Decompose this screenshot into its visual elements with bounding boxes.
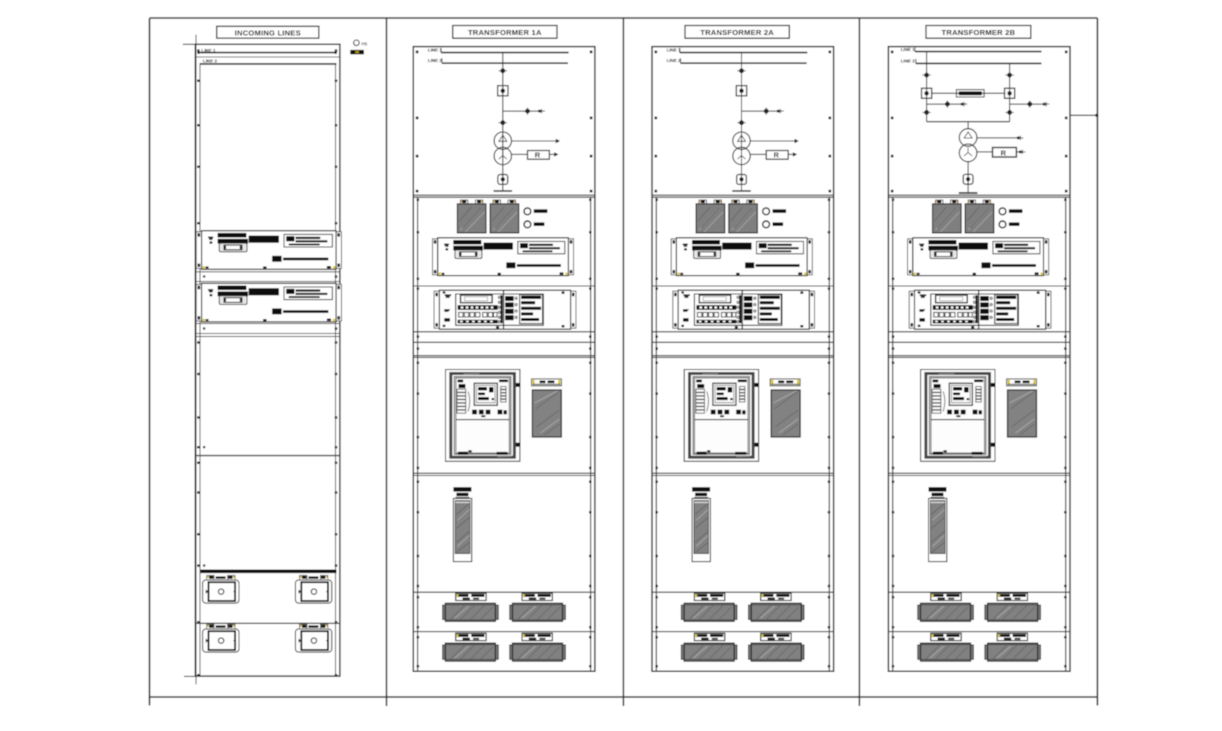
svg-text:LINE 2: LINE 2 bbox=[901, 58, 916, 63]
svg-text:LINE 2: LINE 2 bbox=[203, 58, 218, 63]
svg-text:LINE 1: LINE 1 bbox=[901, 47, 916, 52]
svg-text:TRANSFORMER 2B: TRANSFORMER 2B bbox=[942, 28, 1016, 37]
svg-text:TRANSFORMER 1A: TRANSFORMER 1A bbox=[468, 28, 542, 37]
svg-text:TRANSFORMER 2A: TRANSFORMER 2A bbox=[700, 28, 774, 37]
svg-text:LINE 2: LINE 2 bbox=[667, 58, 682, 63]
svg-text:INCOMING LINES: INCOMING LINES bbox=[235, 28, 301, 37]
svg-text:R: R bbox=[1001, 148, 1007, 157]
svg-text:LINE 1: LINE 1 bbox=[428, 47, 443, 52]
svg-text:LINE 1: LINE 1 bbox=[667, 47, 682, 52]
svg-text:PB: PB bbox=[362, 41, 368, 46]
svg-text:LINE 2: LINE 2 bbox=[428, 58, 443, 63]
